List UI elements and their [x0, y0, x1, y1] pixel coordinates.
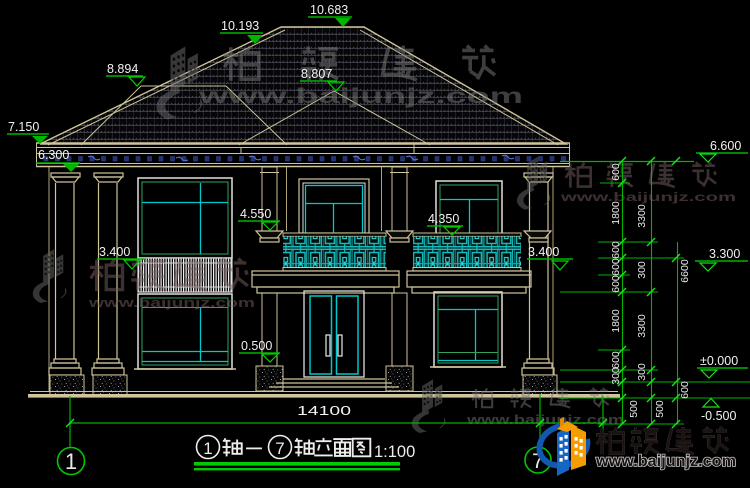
svg-text:7.150: 7.150: [8, 120, 39, 134]
svg-text:3.400: 3.400: [528, 245, 559, 259]
svg-text:3300: 3300: [636, 204, 648, 228]
svg-text:600: 600: [610, 351, 622, 369]
svg-text:1800: 1800: [610, 201, 622, 225]
svg-text:8.807: 8.807: [301, 67, 332, 81]
svg-text:www.baijunjz.com: www.baijunjz.com: [88, 295, 255, 310]
svg-text:4.350: 4.350: [428, 212, 459, 226]
svg-text:14100: 14100: [297, 404, 351, 418]
svg-text:500: 500: [654, 400, 666, 418]
svg-text:www.baijunjz.com: www.baijunjz.com: [559, 190, 736, 204]
svg-text:7: 7: [275, 439, 284, 458]
svg-text:6.600: 6.600: [710, 139, 741, 153]
svg-text:6.300: 6.300: [38, 148, 69, 162]
svg-text:1: 1: [203, 439, 212, 458]
svg-text:600: 600: [610, 163, 622, 181]
svg-text:8.894: 8.894: [107, 62, 138, 76]
svg-text:www.baijunjz.com: www.baijunjz.com: [197, 85, 523, 108]
svg-text:600: 600: [610, 241, 622, 259]
svg-text:3.300: 3.300: [709, 247, 740, 261]
svg-text:-0.500: -0.500: [701, 409, 736, 423]
svg-text:www.baijunjz.com: www.baijunjz.com: [595, 453, 736, 470]
svg-text:1800: 1800: [610, 309, 622, 333]
svg-text:300: 300: [636, 363, 648, 381]
svg-text:3.400: 3.400: [99, 245, 130, 259]
svg-text:10.683: 10.683: [310, 3, 348, 17]
svg-text:300: 300: [636, 261, 648, 279]
svg-text:600: 600: [679, 381, 691, 399]
svg-text:600: 600: [610, 275, 622, 293]
svg-text:1: 1: [65, 449, 77, 474]
svg-text:300: 300: [610, 367, 622, 385]
svg-text:6600: 6600: [679, 259, 691, 283]
svg-text:600: 600: [610, 258, 622, 276]
svg-text:0.500: 0.500: [241, 339, 272, 353]
svg-text:3300: 3300: [636, 314, 648, 338]
svg-text:±0.000: ±0.000: [700, 354, 738, 368]
svg-text:10.193: 10.193: [221, 19, 259, 33]
svg-text:1:100: 1:100: [374, 443, 415, 461]
svg-text:4.550: 4.550: [240, 207, 271, 221]
svg-text:500: 500: [628, 400, 640, 418]
